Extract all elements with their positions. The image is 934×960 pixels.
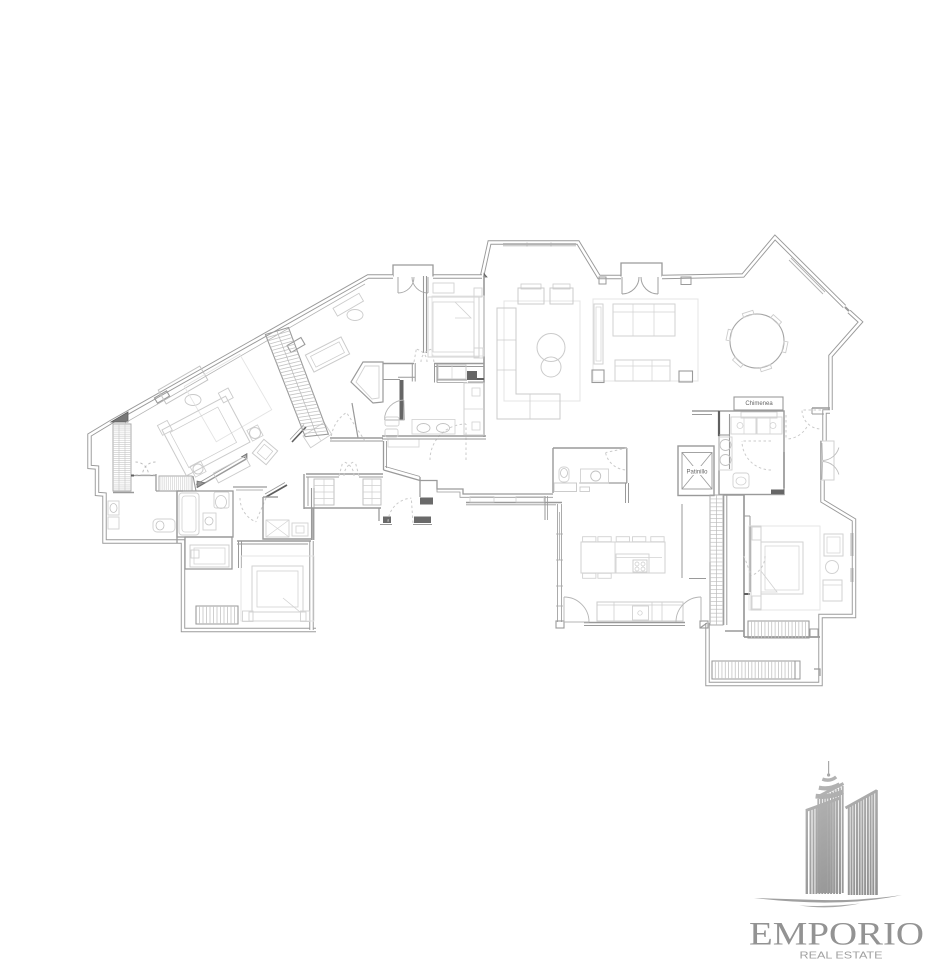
- svg-text:Chimenea: Chimenea: [745, 401, 773, 407]
- svg-text:REAL ESTATE: REAL ESTATE: [800, 951, 883, 960]
- svg-text:EMPORIO: EMPORIO: [749, 917, 924, 953]
- svg-text:Patinillo: Patinillo: [686, 470, 708, 476]
